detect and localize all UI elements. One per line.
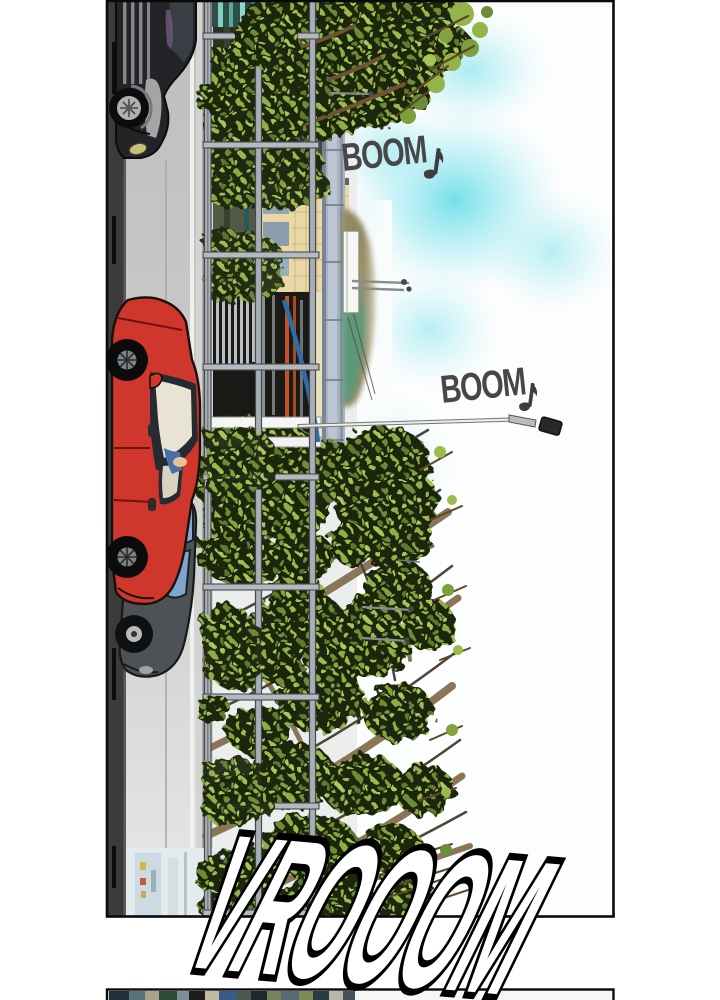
svg-text:BOOM: BOOM: [438, 360, 527, 412]
svg-text:BOOM: BOOM: [339, 128, 428, 180]
